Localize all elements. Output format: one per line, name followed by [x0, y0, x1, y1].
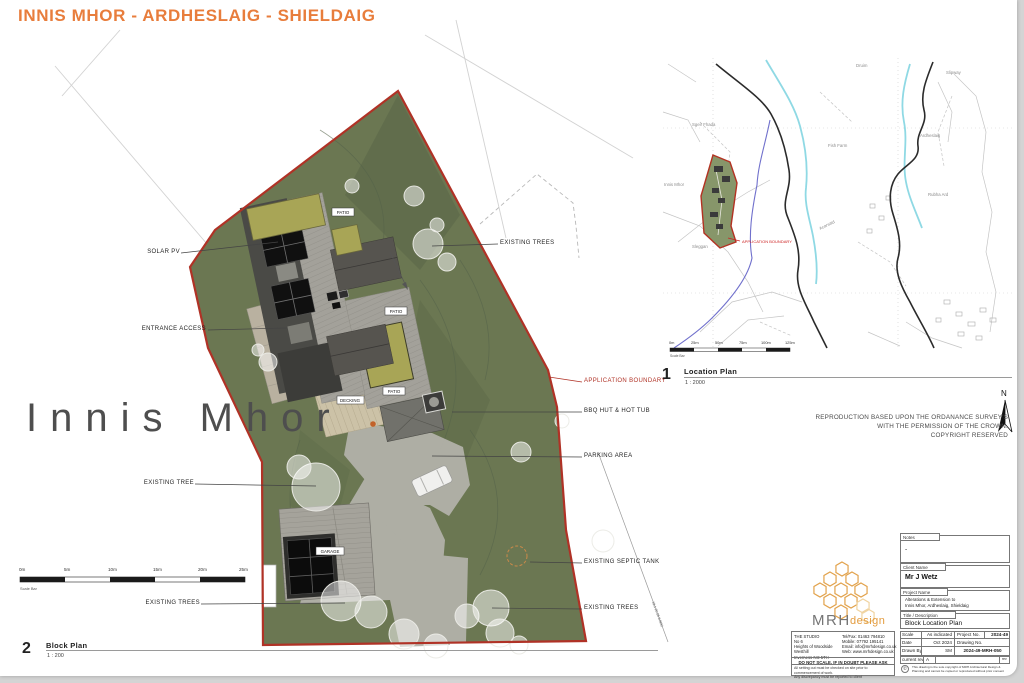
location-plan-number: 1	[662, 366, 671, 384]
patio-b	[332, 225, 363, 256]
disclaimer-line: All setting out must be checked on site …	[794, 666, 893, 675]
logo-mrh-text: MRH	[812, 612, 851, 629]
drawn-value: SM	[922, 647, 955, 655]
client-value: Mr J Wetz	[905, 574, 938, 581]
boundary-leader	[549, 377, 582, 382]
map-label: Innis Mhor	[664, 182, 685, 187]
os-note-line3: COPYRIGHT RESERVED	[744, 431, 1008, 440]
scale-label: Scale	[900, 631, 922, 639]
callout-existing-trees-sw: EXISTING TREES	[118, 600, 200, 606]
drawing-sheet: PATIO PATIO PATIO DECKING GARAGE 19.1 20…	[0, 0, 1017, 676]
rev-label: current rev	[900, 656, 924, 664]
drawing-no-value: 2024-49-MRH-050	[955, 647, 1010, 655]
map-label: Sgeir Fhada	[692, 122, 716, 127]
copyright-note: This drawing is the sole copyright of MR…	[912, 665, 1010, 673]
contact-line: Web: www.mrhdesign.co.uk	[842, 649, 897, 654]
sb-label: 10m	[108, 567, 117, 572]
title-label: Title / Description	[900, 611, 956, 619]
project-line-2: Innis Mhor, Ardheslaig, Shieldaig	[905, 603, 969, 608]
map-label: Acarsaid	[818, 219, 836, 231]
sb-label: 0m	[19, 567, 26, 572]
rev-value: A	[924, 656, 936, 664]
callout-existing-trees-se: EXISTING TREES	[584, 605, 638, 611]
callout-existing-trees-ne: EXISTING TREES	[500, 240, 554, 246]
block-plan-scale: 1 : 200	[47, 653, 64, 659]
map-label: Sleggan	[692, 244, 708, 249]
screenshot-stage: PATIO PATIO PATIO DECKING GARAGE 19.1 20…	[0, 0, 1024, 683]
callout-solar-pv: SOLAR PV	[110, 249, 180, 255]
location-plan-rule	[684, 377, 1012, 378]
callout-application-boundary: APPLICATION BOUNDARY	[584, 378, 666, 384]
sb-label: 100m	[761, 340, 771, 345]
rev-cell: rev	[999, 656, 1010, 664]
patio-tag-2: PATIO	[390, 309, 403, 314]
client-label: Client Name	[900, 563, 946, 571]
sb-label: 50m	[715, 340, 723, 345]
north-label: N	[1001, 389, 1007, 398]
drawn-label: Drawn By	[900, 647, 922, 655]
patio-tag-3: PATIO	[388, 389, 401, 394]
disclaimer-line: Any discrepancy must be reported to clie…	[794, 675, 893, 680]
page-title: INNIS MHOR - ARDHESLAIG - SHIELDAIG	[18, 6, 376, 26]
fire-pit	[370, 421, 376, 427]
setting-out-disclaimer: All setting out must be checked on site …	[794, 666, 893, 680]
map-label: Slipway	[946, 70, 962, 75]
map-label: Ardheslaig	[920, 133, 941, 138]
sb-label: 5m	[64, 567, 71, 572]
map-label: Rubha Ard	[928, 192, 949, 197]
sb-label: 0m	[669, 340, 674, 345]
location-plan-scale-bar: 0m 25m 50m 75m 100m 125m Scale Bar	[669, 340, 795, 358]
callout-existing-tree: EXISTING TREE	[120, 480, 194, 486]
notes-value: -	[905, 546, 907, 553]
copyright-icon: ©	[901, 665, 909, 673]
stream-cyan-west	[766, 60, 817, 284]
site-name-large: Innis Mhor	[26, 396, 343, 441]
callout-entrance-access: ENTRANCE ACCESS	[118, 326, 206, 332]
sb-caption: Scale Bar	[670, 354, 686, 358]
stream-cyan-east	[902, 64, 922, 228]
plan-artwork: PATIO PATIO PATIO DECKING GARAGE 19.1 20…	[0, 0, 1017, 676]
block-plan-title: Block Plan	[46, 641, 87, 650]
do-not-scale-note: DO NOT SCALE. IF IN DOUBT PLEASE ASK	[791, 657, 895, 665]
studio-address: THE STUDIO No 6 Heights of Woodside West…	[794, 634, 833, 660]
os-note-line1: REPRODUCTION BASED UPON THE ORDANANCE SU…	[744, 413, 1008, 422]
sb-label: 75m	[739, 340, 747, 345]
road-ref-text: 19.1 20 26 9 BRC	[651, 601, 664, 628]
project-no-label: Project No.	[955, 631, 985, 639]
callout-septic-tank: EXISTING SEPTIC TANK	[584, 559, 659, 565]
notes-label: Notes	[900, 533, 940, 541]
map-label: Druim	[856, 63, 868, 68]
sb-caption: Scale Bar	[20, 586, 38, 591]
sb-label: 25m	[691, 340, 699, 345]
drawing-no-label: Drawing No.	[955, 639, 1010, 647]
block-plan-rule	[46, 650, 658, 651]
sb-label: 25m	[239, 567, 248, 572]
patio-tag-1: PATIO	[337, 210, 350, 215]
block-plan-scale-bar: 0m 5m 10m 15m 20m 25m Scale Bar	[19, 567, 248, 591]
date-value: Oct 2024	[922, 639, 955, 647]
date-label: Date	[900, 639, 922, 647]
sb-label: 125m	[785, 340, 795, 345]
project-no-value: 2024-49	[985, 631, 1010, 639]
callout-bbq-hut: BBQ HUT & HOT TUB	[584, 408, 650, 414]
mini-site	[701, 155, 737, 248]
os-reproduction-note: REPRODUCTION BASED UPON THE ORDANANCE SU…	[744, 413, 1008, 440]
location-plan-scale: 1 : 2000	[685, 380, 705, 386]
callout-parking-area: PARKING AREA	[584, 453, 632, 459]
hot-tub	[422, 391, 445, 413]
garage-tag: GARAGE	[321, 549, 340, 554]
os-note-line2: WITH THE PERMISSION OF THE CROWN.	[744, 422, 1008, 431]
logo-design-text: design	[850, 615, 885, 627]
project-line-1: Alterations & Extension to	[905, 597, 955, 602]
location-plan-title: Location Plan	[684, 367, 737, 376]
project-label: Project Name	[900, 588, 948, 596]
studio-contact: Tel/Fax: 01463 794810 Mobile: 07792 1951…	[842, 634, 897, 655]
scale-value: As indicated	[922, 631, 955, 639]
mini-boundary-label: APPLICATION BOUNDARY	[742, 239, 792, 244]
map-buildings	[867, 196, 996, 340]
block-plan-number: 2	[22, 640, 31, 658]
copyright-line: Planning and cannot be copied or reprodu…	[912, 669, 1010, 673]
sb-label: 20m	[198, 567, 207, 572]
map-label: Fish Farm	[828, 143, 848, 148]
bin-store	[262, 565, 276, 607]
decking-tag: DECKING	[340, 398, 361, 403]
title-value: Block Location Plan	[905, 620, 962, 627]
sb-label: 15m	[153, 567, 162, 572]
location-map: APPLICATION BOUNDARY Sgeir Fhada Druim S…	[663, 58, 1012, 358]
